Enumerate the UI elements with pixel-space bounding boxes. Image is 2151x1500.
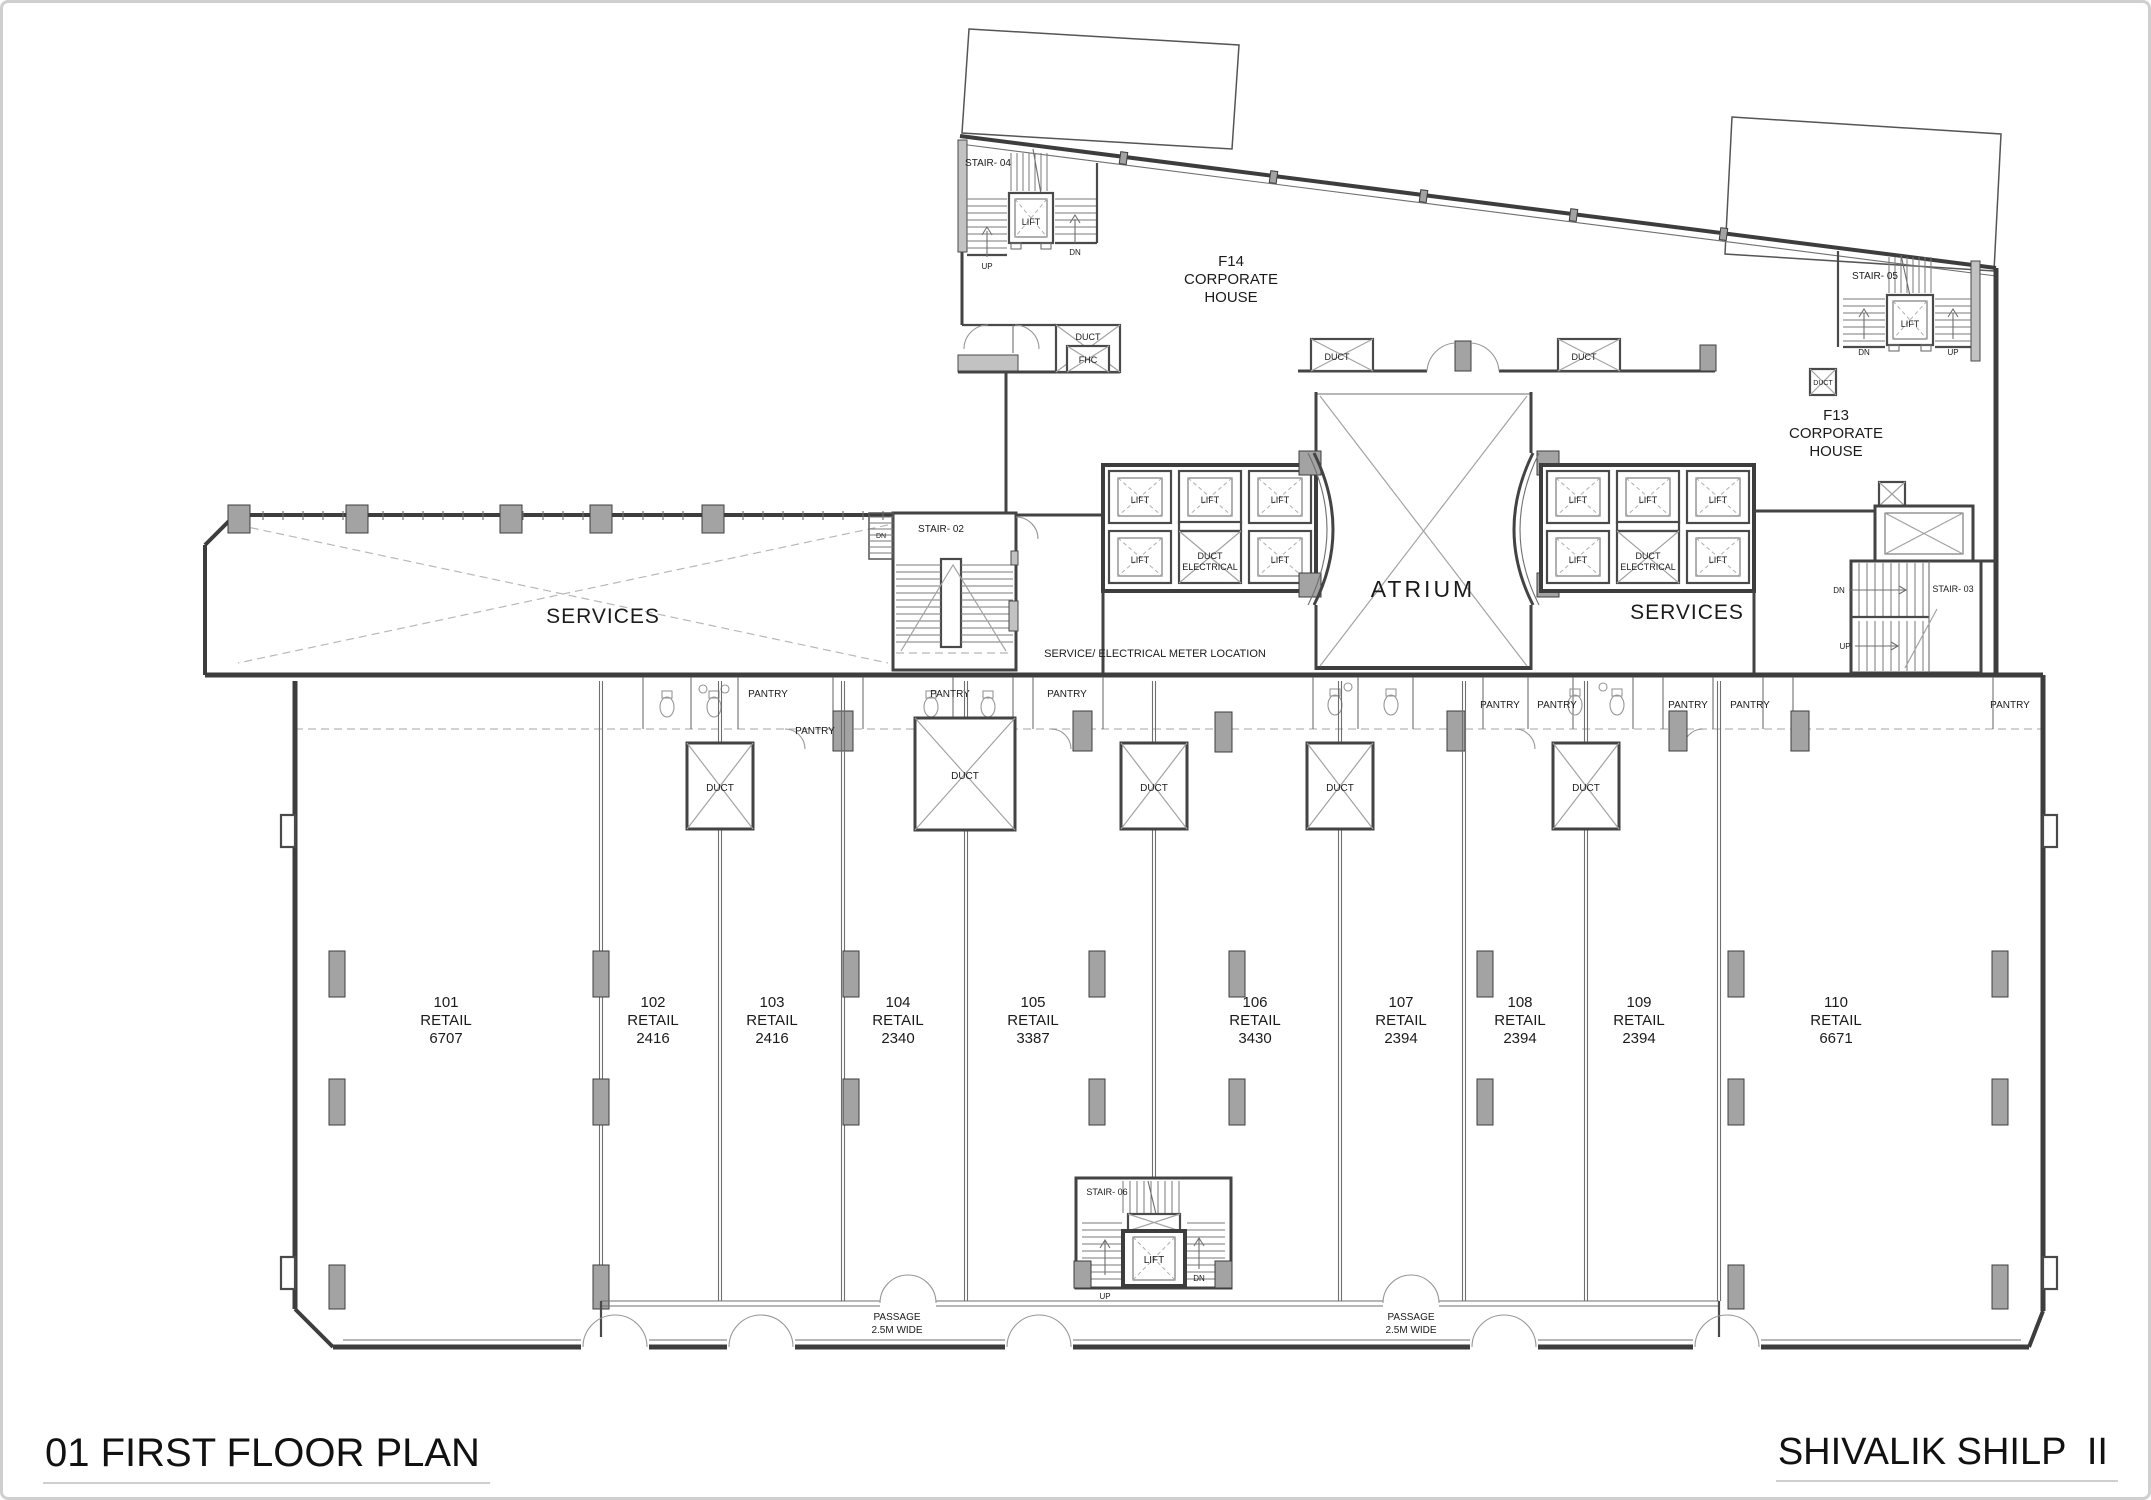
stair-05: LIFT STAIR- 05 DN UP bbox=[1838, 251, 1980, 361]
unit-number: 102 bbox=[640, 994, 665, 1011]
unit-area: 3430 bbox=[1238, 1030, 1271, 1047]
unit-number: 101 bbox=[433, 994, 458, 1011]
unit-area: 2416 bbox=[636, 1030, 669, 1047]
corporate-house-f14: F14 CORPORATE HOUSE bbox=[1184, 253, 1278, 306]
dn-label: DN bbox=[1858, 348, 1870, 357]
lift-label: LIFT bbox=[1569, 555, 1588, 565]
lift-label: LIFT bbox=[1131, 495, 1150, 505]
up-label: UP bbox=[981, 262, 992, 271]
duct-label: DUCT bbox=[1813, 380, 1833, 387]
duct-label: DUCT bbox=[1076, 332, 1101, 342]
lift-label: LIFT bbox=[1201, 495, 1220, 505]
lift-bank-right: LIFT LIFT LIFT LIFT DUCT ELECTRICAL L bbox=[1541, 465, 1754, 675]
dn-label: DN bbox=[1069, 248, 1081, 257]
f14-line3: HOUSE bbox=[1204, 289, 1257, 306]
unit-type: RETAIL bbox=[1375, 1012, 1426, 1029]
unit-type: RETAIL bbox=[1007, 1012, 1058, 1029]
pantry-label: PANTRY bbox=[748, 689, 788, 700]
unit-area: 6707 bbox=[429, 1030, 462, 1047]
services-area-left: SERVICES bbox=[205, 505, 893, 675]
duct-electrical-line1: DUCT bbox=[1198, 551, 1223, 561]
passage-label-line2: 2.5M WIDE bbox=[1385, 1325, 1436, 1336]
stair-03-label: STAIR- 03 bbox=[1932, 584, 1973, 594]
roof-outline-top bbox=[962, 29, 1239, 149]
retail-unit-104: 104 RETAIL 2340 bbox=[872, 994, 923, 1047]
unit-type: RETAIL bbox=[1494, 1012, 1545, 1029]
unit-number: 109 bbox=[1626, 994, 1651, 1011]
roof-outline-right bbox=[1725, 117, 2001, 271]
up-label: UP bbox=[1099, 1292, 1110, 1301]
lift-label: LIFT bbox=[1271, 495, 1290, 505]
retail-area: DUCT DUCT DUCT DUCT DUCT bbox=[281, 675, 2057, 1355]
unit-number: 110 bbox=[1824, 994, 1848, 1011]
dn-label: DN bbox=[1193, 1274, 1205, 1283]
pantry-label: PANTRY bbox=[795, 726, 835, 737]
duct-electrical-line2: ELECTRICAL bbox=[1620, 562, 1676, 572]
stair-02-label: STAIR- 02 bbox=[918, 524, 964, 535]
unit-number: 108 bbox=[1507, 994, 1532, 1011]
f13-line1: F13 bbox=[1823, 407, 1849, 424]
dn-label: DN bbox=[876, 533, 886, 540]
retail-unit-103: 103 RETAIL 2416 bbox=[746, 994, 797, 1047]
stair-04-lift-box: LIFT bbox=[1009, 193, 1053, 249]
slanted-wall bbox=[960, 136, 1996, 276]
services-label: SERVICES bbox=[546, 605, 660, 628]
unit-area: 2340 bbox=[881, 1030, 914, 1047]
pantry-label: PANTRY bbox=[1480, 700, 1520, 711]
unit-number: 103 bbox=[759, 994, 784, 1011]
stair-06: LIFT STAIR- 06 UP DN bbox=[1074, 1178, 1232, 1301]
lift-label: LIFT bbox=[1901, 319, 1920, 329]
unit-number: 105 bbox=[1020, 994, 1045, 1011]
unit-number: 106 bbox=[1242, 994, 1267, 1011]
duct-label: DUCT bbox=[1572, 352, 1597, 362]
retail-unit-110: 110 RETAIL 6671 bbox=[1810, 994, 1861, 1047]
atrium-area: ATRIUM bbox=[1299, 392, 1559, 670]
unit-type: RETAIL bbox=[746, 1012, 797, 1029]
lift-label: LIFT bbox=[1144, 1255, 1165, 1266]
duct-label: DUCT bbox=[951, 771, 979, 782]
retail-unit-107: 107 RETAIL 2394 bbox=[1375, 994, 1426, 1047]
duct-label: DUCT bbox=[1140, 783, 1168, 794]
unit-type: RETAIL bbox=[872, 1012, 923, 1029]
unit-area: 6671 bbox=[1819, 1030, 1852, 1047]
lift-label: LIFT bbox=[1639, 495, 1658, 505]
corporate-house-f13: DUCT F13 CORPORATE HOUSE bbox=[1789, 369, 1883, 460]
retail-unit-105: 105 RETAIL 3387 bbox=[1007, 994, 1058, 1047]
retail-unit-101: 101 RETAIL 6707 bbox=[420, 994, 471, 1047]
duct-electrical-line2: ELECTRICAL bbox=[1182, 562, 1238, 572]
passage-label-line1: PASSAGE bbox=[873, 1312, 920, 1323]
floor-plan-svg: LIFT STAIR- 04 UP DN DUCT FHC F14 C bbox=[3, 3, 2151, 1500]
duct-label: DUCT bbox=[1572, 783, 1600, 794]
duct-label: DUCT bbox=[1325, 352, 1350, 362]
retail-unit-109: 109 RETAIL 2394 bbox=[1613, 994, 1664, 1047]
lift-label: LIFT bbox=[1271, 555, 1290, 565]
lift-label: LIFT bbox=[1022, 217, 1041, 227]
lift-label: LIFT bbox=[1131, 555, 1150, 565]
duct-label: DUCT bbox=[1326, 783, 1354, 794]
services-label: SERVICES bbox=[1630, 601, 1744, 624]
meter-note: SERVICE/ ELECTRICAL METER LOCATION bbox=[1044, 648, 1266, 660]
unit-number: 107 bbox=[1388, 994, 1413, 1011]
unit-area: 3387 bbox=[1016, 1030, 1049, 1047]
stair-05-lift-box: LIFT bbox=[1887, 295, 1933, 351]
unit-type: RETAIL bbox=[420, 1012, 471, 1029]
stair-04: LIFT STAIR- 04 UP DN bbox=[958, 140, 1097, 271]
unit-number: 104 bbox=[885, 994, 910, 1011]
wc-fixtures bbox=[660, 683, 1703, 749]
project-title: SHIVALIK SHILP II bbox=[1776, 1431, 2118, 1482]
f13-line3: HOUSE bbox=[1809, 443, 1862, 460]
stair-05-label: STAIR- 05 bbox=[1852, 271, 1898, 282]
retail-unit-106: 106 RETAIL 3430 bbox=[1229, 994, 1280, 1047]
middle-band: SERVICES STAIR- 02 DN LIFT bbox=[205, 392, 1996, 675]
fhc-label: FHC bbox=[1079, 355, 1098, 365]
pantry-label: PANTRY bbox=[1537, 700, 1577, 711]
passage-label-line2: 2.5M WIDE bbox=[871, 1325, 922, 1336]
passage-label-line1: PASSAGE bbox=[1387, 1312, 1434, 1323]
unit-type: RETAIL bbox=[1613, 1012, 1664, 1029]
unit-type: RETAIL bbox=[1810, 1012, 1861, 1029]
stair-02: STAIR- 02 DN bbox=[869, 513, 1103, 670]
fhc-duct-room: DUCT FHC bbox=[958, 325, 1120, 372]
unit-type: RETAIL bbox=[1229, 1012, 1280, 1029]
corridor-ducts: DUCT DUCT bbox=[1298, 339, 1716, 371]
pantry-label: PANTRY bbox=[1990, 700, 2030, 711]
up-label: UP bbox=[1839, 642, 1850, 651]
f13-line2: CORPORATE bbox=[1789, 425, 1883, 442]
unit-type: RETAIL bbox=[627, 1012, 678, 1029]
pantry-label: PANTRY bbox=[1047, 689, 1087, 700]
unit-area: 2416 bbox=[755, 1030, 788, 1047]
plan-title: 01 FIRST FLOOR PLAN bbox=[43, 1431, 490, 1484]
lift-label: LIFT bbox=[1709, 495, 1728, 505]
lift-label: LIFT bbox=[1709, 555, 1728, 565]
retail-unit-102: 102 RETAIL 2416 bbox=[627, 994, 678, 1047]
atrium-label: ATRIUM bbox=[1371, 576, 1475, 602]
f14-line1: F14 bbox=[1218, 253, 1244, 270]
drawing-sheet: LIFT STAIR- 04 UP DN DUCT FHC F14 C bbox=[0, 0, 2151, 1500]
unit-area: 2394 bbox=[1384, 1030, 1417, 1047]
retail-unit-108: 108 RETAIL 2394 bbox=[1494, 994, 1545, 1047]
duct-label: DUCT bbox=[706, 783, 734, 794]
unit-area: 2394 bbox=[1622, 1030, 1655, 1047]
pantry-label: PANTRY bbox=[1730, 700, 1770, 711]
pantry-label: PANTRY bbox=[1668, 700, 1708, 711]
dn-label: DN bbox=[1833, 586, 1845, 595]
unit-area: 2394 bbox=[1503, 1030, 1536, 1047]
duct-electrical-line1: DUCT bbox=[1636, 551, 1661, 561]
pantry-band: PANTRY PANTRY PANTRY PANTRY PANTRY PANTR… bbox=[205, 675, 2043, 752]
up-label: UP bbox=[1947, 348, 1958, 357]
stair-03: STAIR- 03 DN UP bbox=[1754, 482, 1996, 673]
lift-bank-left: LIFT LIFT LIFT LIFT DUCT ELECTRICAL L bbox=[1103, 465, 1316, 675]
stair-06-label: STAIR- 06 bbox=[1086, 1187, 1127, 1197]
lift-label: LIFT bbox=[1569, 495, 1588, 505]
f14-line2: CORPORATE bbox=[1184, 271, 1278, 288]
stair-04-label: STAIR- 04 bbox=[965, 158, 1011, 169]
